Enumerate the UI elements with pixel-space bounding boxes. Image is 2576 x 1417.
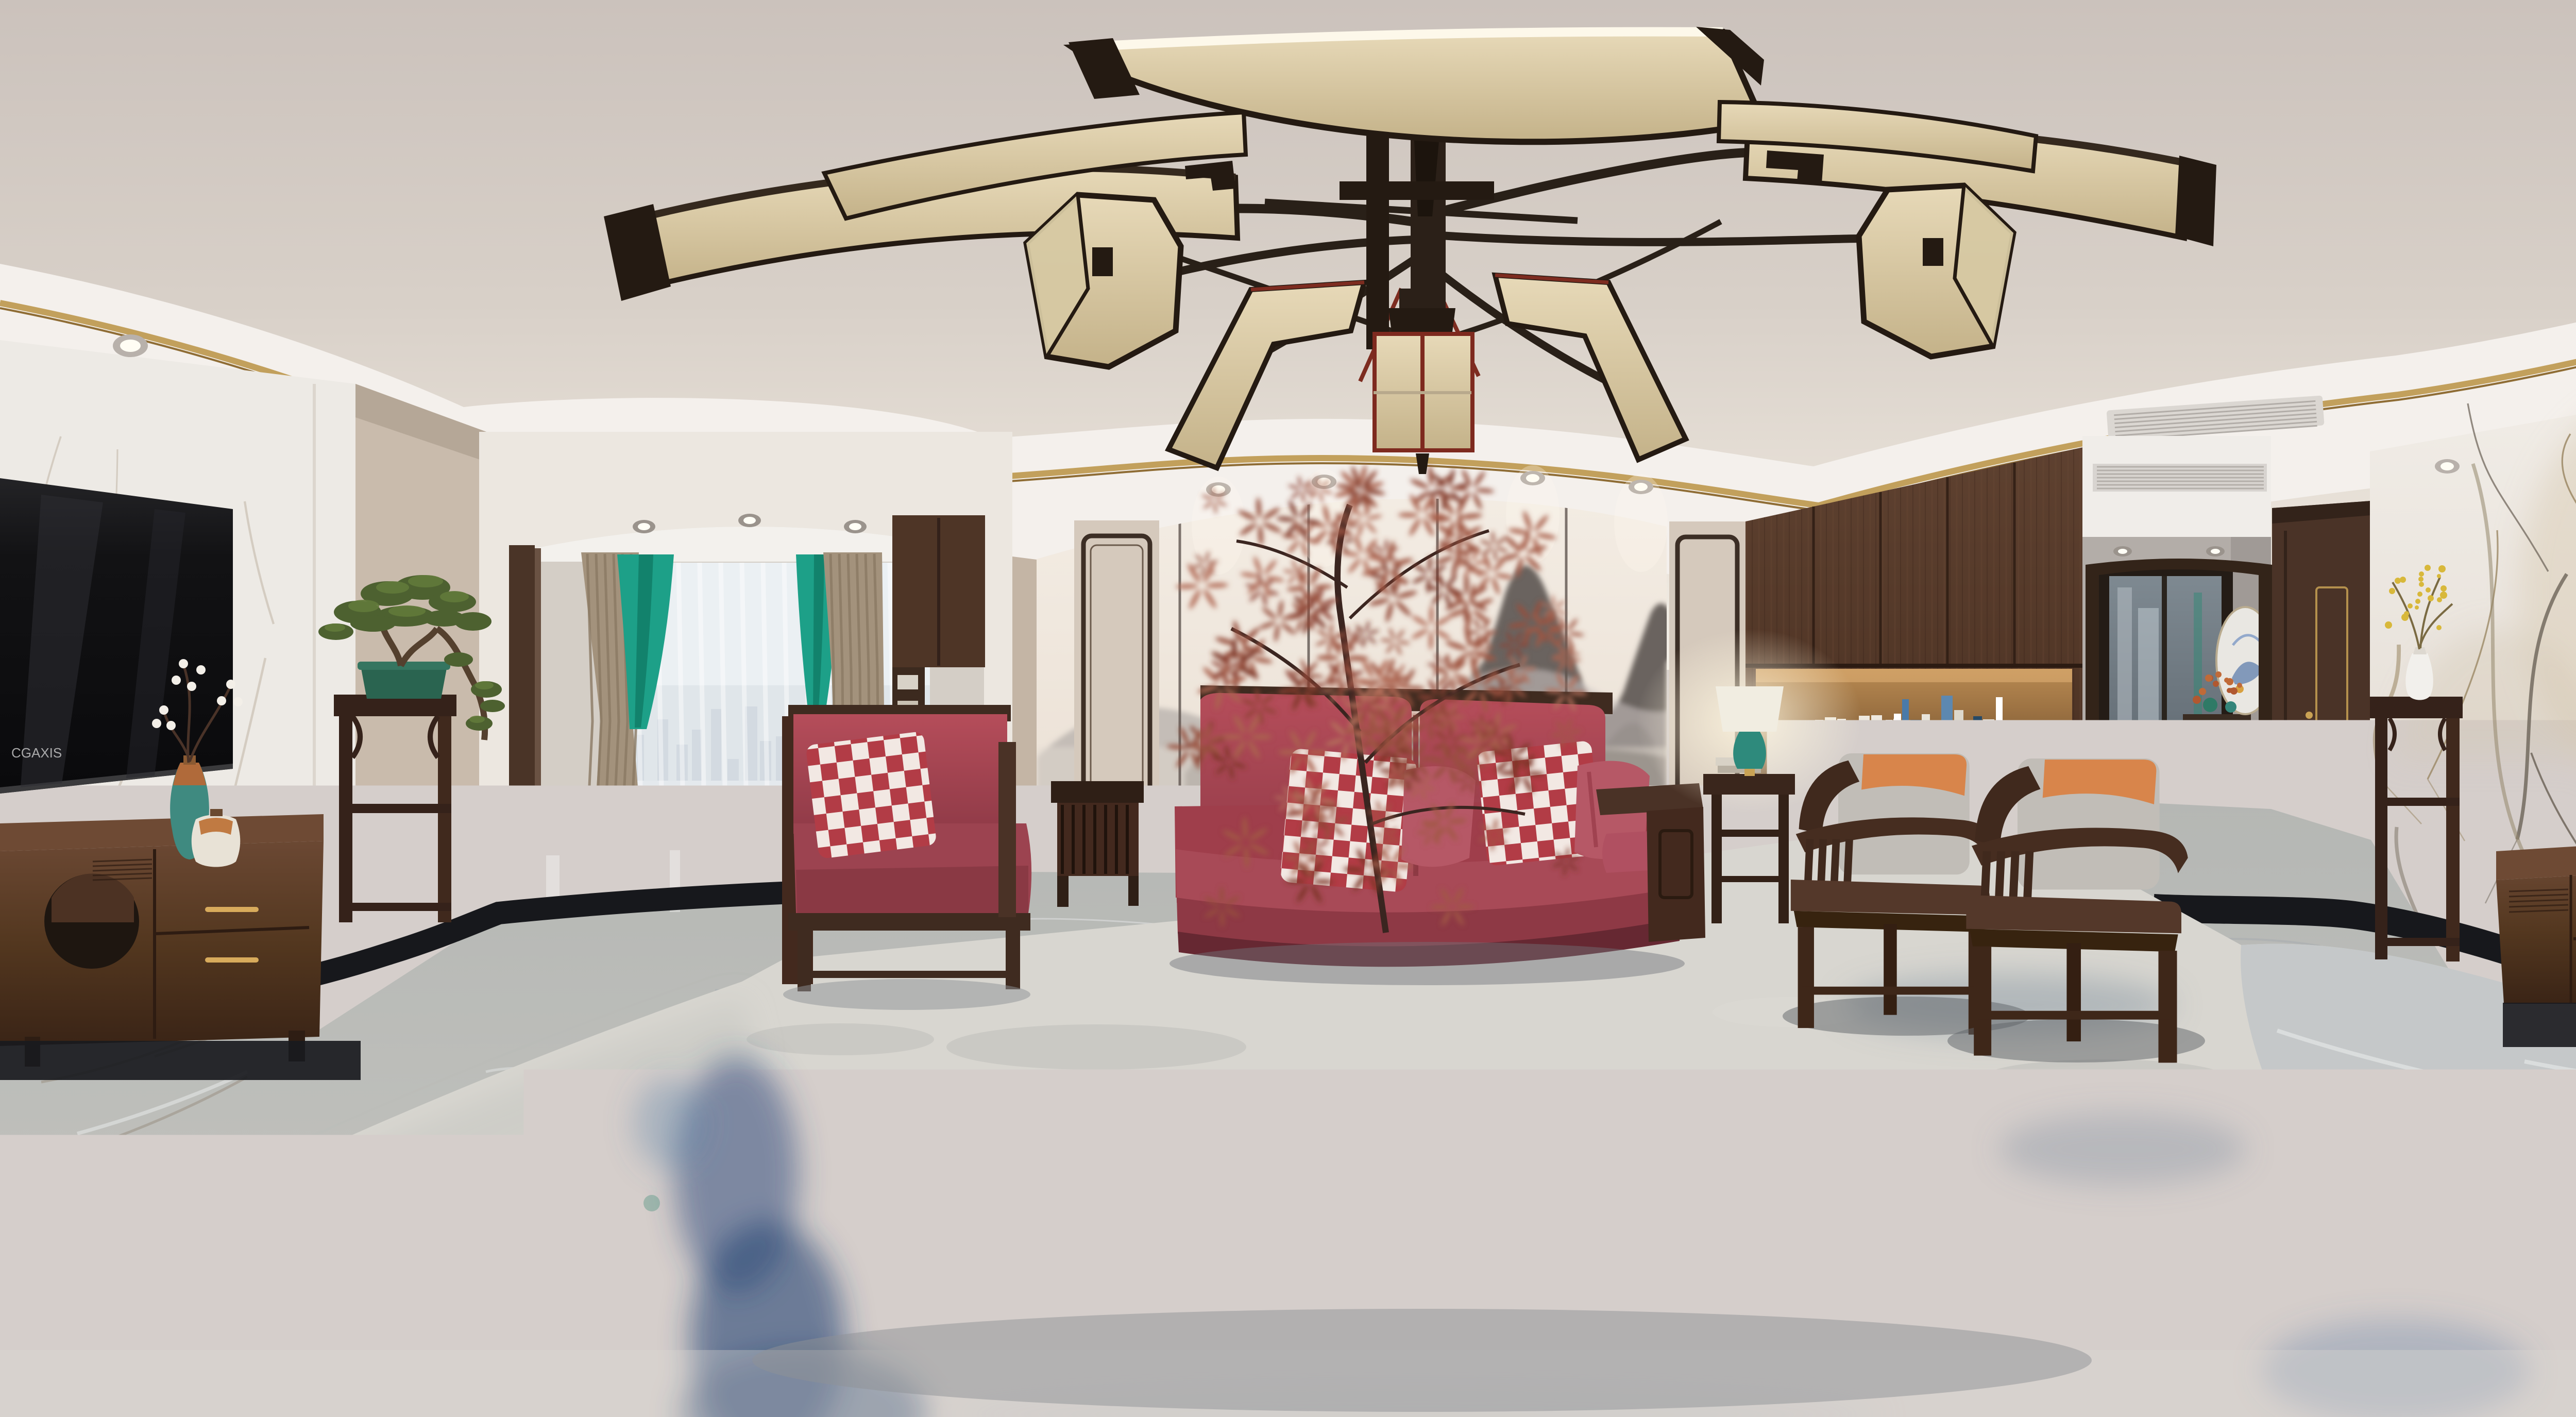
svg-text:CGAXIS: CGAXIS [11,745,62,761]
